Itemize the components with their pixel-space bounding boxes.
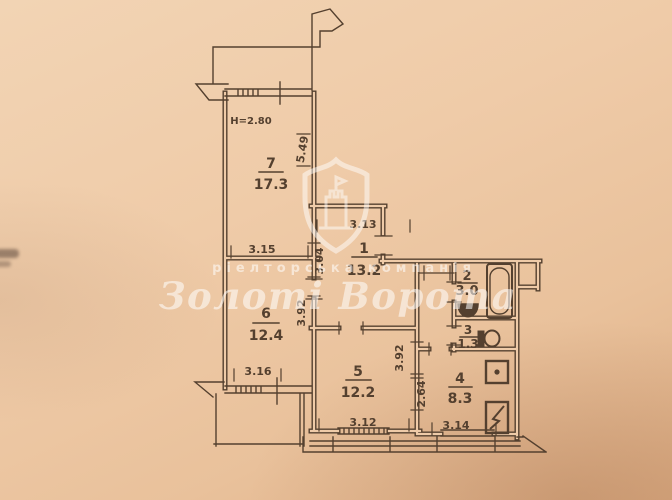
photo-artifact: [0, 261, 11, 267]
dim-kitchen-width: 3.14: [442, 419, 469, 432]
dim-kitchen-depth: 2.64: [415, 380, 428, 407]
room-5-number: 5: [353, 364, 363, 380]
room-4-area: 8.3: [448, 391, 473, 407]
room-4-number: 4: [455, 371, 465, 387]
kitchen-sink-icon: [486, 402, 508, 433]
watermark-brand: Золоті Ворота: [159, 274, 517, 318]
dim-room6-balcony-width: 3.16: [244, 365, 271, 378]
dim-room7-width: 3.15: [248, 243, 275, 256]
stove-icon: [486, 361, 508, 383]
room-3-area: 1.3: [457, 337, 478, 351]
room-7-area: 17.3: [254, 177, 289, 193]
room-5-area: 12.2: [341, 385, 376, 401]
dim-room7-depth: 5.49: [294, 135, 312, 164]
room-3-number: 3: [464, 323, 472, 337]
room-1-number: 1: [359, 241, 369, 257]
dim-room5-depth: 3.92: [393, 344, 406, 371]
room-7-number: 7: [266, 156, 276, 172]
dim-room5-width: 3.12: [349, 416, 376, 429]
floorplan-drawing: H=2.80 7 17.3 1 13.2 6 12.4 2 3.0 3 1.3 …: [0, 0, 672, 500]
floorplan-photo: H=2.80 7 17.3 1 13.2 6 12.4 2 3.0 3 1.3 …: [0, 0, 672, 500]
ceiling-height-label: H=2.80: [230, 116, 271, 127]
photo-artifact: [0, 249, 19, 258]
watermark: ріелторська компанія Золоті Ворота: [159, 160, 517, 318]
toilet-icon: [478, 331, 500, 347]
room-6-area: 12.4: [249, 328, 284, 344]
